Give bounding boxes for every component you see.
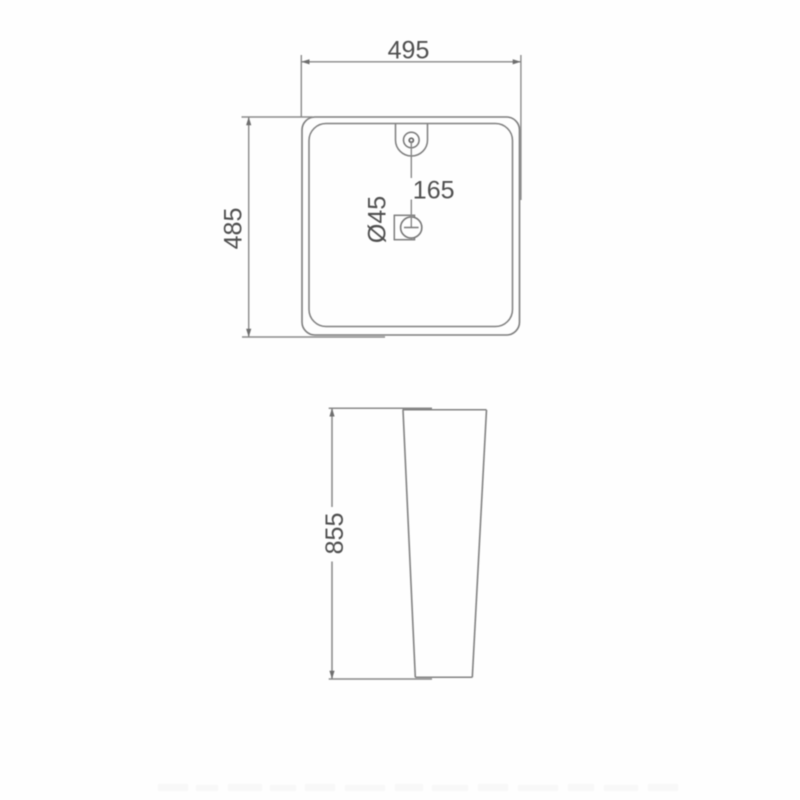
svg-text:485: 485 <box>219 208 247 250</box>
svg-text:165: 165 <box>413 177 455 205</box>
svg-text:855: 855 <box>321 513 349 555</box>
svg-text:Ø45: Ø45 <box>364 196 392 243</box>
svg-text:495: 495 <box>388 36 430 64</box>
